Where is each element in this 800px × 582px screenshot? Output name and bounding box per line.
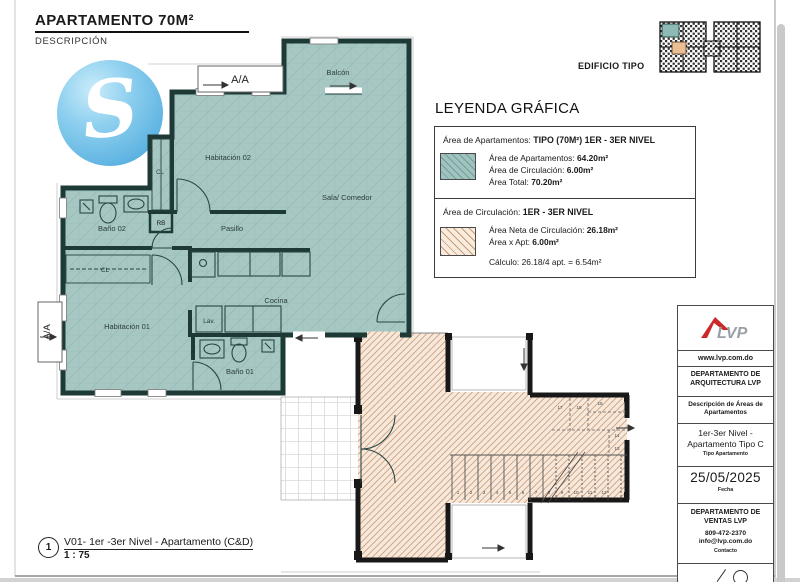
bathroom02-fixtures bbox=[80, 196, 148, 223]
stair-numbers: 1 2 3 4 5 6 7 8 9 10 11 12 bbox=[457, 490, 607, 495]
svg-text:17: 17 bbox=[557, 405, 563, 410]
contact-field: DEPARTAMENTO DE VENTAS LVP 809-472-2370 … bbox=[678, 504, 773, 564]
kitchen-counters bbox=[191, 252, 310, 332]
legend-row: Área x Apt: 6.00m² bbox=[489, 236, 687, 248]
viewport-scale: 1 : 75 bbox=[64, 550, 90, 561]
svg-text:7: 7 bbox=[535, 490, 538, 495]
wall-piers bbox=[354, 333, 629, 560]
legend-row: Área de Circulación: 6.00m² bbox=[489, 164, 687, 176]
lvp-logo-text: LVP bbox=[717, 325, 748, 342]
legend-calculation: Cálculo: 26.18/4 apt. = 6.54m² bbox=[489, 257, 687, 267]
apartment-type-value: 1er-3er Nivel - Apartamento Tipo C bbox=[678, 428, 773, 449]
legend-circulation-header-label: Área de Circulación: bbox=[443, 207, 520, 217]
drawing-sheet: S bbox=[0, 0, 800, 582]
ac-top-label: A/A bbox=[231, 74, 249, 86]
contact-label: Contacto bbox=[678, 548, 773, 554]
legend-row: Área Neta de Circulación: 26.18m² bbox=[489, 224, 687, 236]
scrollbar-thumb[interactable] bbox=[777, 24, 785, 582]
date-label: Fecha bbox=[678, 487, 773, 493]
website: www.lvp.com.do bbox=[678, 351, 773, 367]
key-plan bbox=[660, 22, 760, 72]
svg-text:9: 9 bbox=[561, 490, 564, 495]
upper-flight-numbers: 17 18 15 14 13 bbox=[557, 401, 620, 451]
date-field: 25/05/2025 Fecha bbox=[678, 467, 773, 504]
stairs bbox=[450, 452, 627, 503]
svg-text:18: 18 bbox=[576, 405, 582, 410]
legend-apartments-header-label: Área de Apartamentos: bbox=[443, 135, 531, 145]
lobby-tiles bbox=[281, 397, 358, 500]
interior-walls bbox=[63, 137, 310, 360]
legend-circulation-section: Área de Circulación: 1ER - 3ER NIVEL Áre… bbox=[435, 198, 695, 277]
title-block: APARTAMENTO 70M² DESCRIPCIÓN bbox=[35, 12, 249, 47]
apartment-type-label: Tipo Apartamento bbox=[678, 451, 773, 457]
page-title: APARTAMENTO 70M² bbox=[35, 12, 249, 33]
door-arcs bbox=[152, 179, 405, 390]
label-pasillo: Pasillo bbox=[221, 224, 243, 233]
svg-text:2: 2 bbox=[470, 490, 473, 495]
svg-text:8: 8 bbox=[548, 490, 551, 495]
label-habitacion02: Habitación 02 bbox=[205, 153, 251, 162]
legend-title: LEYENDA GRÁFICA bbox=[435, 100, 696, 117]
svg-text:14: 14 bbox=[614, 433, 620, 438]
label-cl-upper: CL bbox=[156, 170, 164, 176]
double-door bbox=[361, 415, 395, 483]
viewport-title: V01- 1er -3er Nivel - Apartamento (C&D) bbox=[64, 536, 253, 550]
lvp-logo: LVP bbox=[695, 313, 757, 343]
svg-text:3: 3 bbox=[483, 490, 486, 495]
svg-text:1: 1 bbox=[457, 490, 460, 495]
circulation-swatch bbox=[440, 227, 476, 256]
closet-upper bbox=[152, 139, 170, 210]
lower-landing-notch bbox=[452, 505, 526, 558]
legend-row: Área de Apartamentos: 64.20m² bbox=[489, 152, 687, 164]
date-value: 25/05/2025 bbox=[678, 470, 773, 485]
svg-text:12: 12 bbox=[601, 490, 607, 495]
key-plan-label: EDIFICIO TIPO bbox=[578, 61, 658, 71]
apartment-swatch bbox=[440, 153, 476, 180]
label-lav: Lav. bbox=[203, 318, 215, 325]
label-balcon: Balcón bbox=[327, 68, 350, 77]
legend-apartments-section: Área de Apartamentos: TIPO (70M²) 1ER - … bbox=[435, 127, 695, 198]
sheet-number-box bbox=[677, 563, 774, 582]
svg-text:4: 4 bbox=[496, 490, 499, 495]
legend-circulation-header-value: 1ER - 3ER NIVEL bbox=[523, 207, 593, 217]
label-bano01: Baño 01 bbox=[226, 367, 254, 376]
label-cocina: Cocina bbox=[264, 296, 288, 305]
page-subtitle: DESCRIPCIÓN bbox=[35, 36, 249, 47]
svg-text:13: 13 bbox=[614, 446, 620, 451]
legend: LEYENDA GRÁFICA Área de Apartamentos: TI… bbox=[434, 100, 696, 278]
watermark-letter: S bbox=[78, 68, 142, 151]
closet-lower bbox=[66, 255, 150, 283]
legend-apartments-header-value: TIPO (70M²) 1ER - 3ER NIVEL bbox=[533, 135, 655, 145]
label-sala-comedor: Sala/ Comedor bbox=[322, 193, 373, 202]
label-rb: RB bbox=[156, 220, 165, 227]
legend-box: Área de Apartamentos: TIPO (70M²) 1ER - … bbox=[434, 126, 696, 278]
svg-text:6: 6 bbox=[522, 490, 525, 495]
circulation-area: 1 2 3 4 5 6 7 8 9 10 11 12 bbox=[281, 333, 629, 572]
svg-text:11: 11 bbox=[588, 490, 593, 495]
legend-row: Área Total: 70.20m² bbox=[489, 176, 687, 188]
svg-text:5: 5 bbox=[509, 490, 512, 495]
sheet-number-circle bbox=[733, 570, 748, 582]
key-plan-unit-highlight bbox=[662, 24, 679, 37]
label-habitacion01: Habitación 01 bbox=[104, 322, 150, 331]
company-logo: LVP bbox=[678, 306, 773, 351]
apartment-type-field: 1er-3er Nivel - Apartamento Tipo C Tipo … bbox=[678, 424, 773, 467]
phone: 809-472-2370 bbox=[678, 530, 773, 538]
svg-text:10: 10 bbox=[573, 490, 579, 495]
ac-left-label: A/A bbox=[42, 324, 53, 340]
title-block-sidebar: LVP www.lvp.com.do DEPARTAMENTO DE ARQUI… bbox=[677, 305, 774, 582]
email: info@lvp.com.do bbox=[678, 538, 773, 546]
watermark-logo: S bbox=[57, 60, 163, 166]
dept-arquitectura: DEPARTAMENTO DE ARQUITECTURA LVP bbox=[678, 367, 773, 397]
upper-landing-notch bbox=[452, 337, 526, 390]
upper-flight-dashed bbox=[552, 398, 627, 455]
laundry-box bbox=[196, 306, 222, 332]
rb-shelf bbox=[150, 212, 172, 232]
bathroom01-fixtures bbox=[200, 338, 274, 362]
key-plan-circulation-highlight bbox=[672, 42, 686, 54]
label-cl-lower: CL bbox=[101, 267, 110, 274]
label-bano02: Baño 02 bbox=[98, 224, 126, 233]
circulation-walls bbox=[356, 333, 629, 560]
svg-text:15: 15 bbox=[597, 401, 603, 406]
sheet-description: Descripción de Áreas de Apartamentos bbox=[678, 397, 773, 424]
dept-ventas: DEPARTAMENTO DE VENTAS LVP bbox=[678, 509, 773, 526]
viewport-number-bubble: 1 bbox=[38, 537, 59, 558]
